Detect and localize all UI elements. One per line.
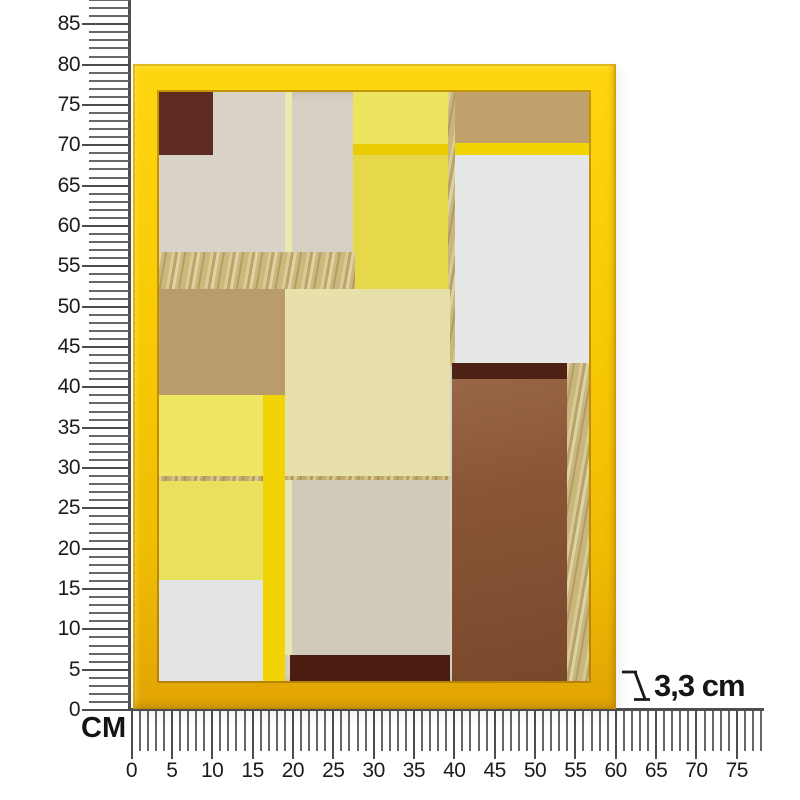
horizontal-tick [187, 711, 189, 751]
horizontal-tick [163, 711, 165, 751]
vertical-tick [82, 548, 129, 550]
horizontal-tick [566, 711, 568, 751]
block-gold-strip-right [567, 363, 589, 681]
vertical-ruler-label: 20 [58, 538, 80, 560]
horizontal-tick [639, 711, 641, 751]
horizontal-ruler-label: 70 [685, 760, 707, 782]
vertical-tick [82, 427, 129, 429]
block-yellow-stripe-vertical [263, 395, 285, 681]
vertical-tick [89, 523, 129, 525]
horizontal-ruler-label: 75 [726, 760, 748, 782]
horizontal-tick [131, 711, 133, 759]
vertical-tick [89, 31, 129, 33]
depth-annotation: 3,3 cm [621, 668, 745, 704]
horizontal-tick [591, 711, 593, 751]
vertical-tick [89, 281, 129, 283]
block-maroon-strip-bottom [290, 655, 450, 681]
vertical-ruler-label: 70 [58, 134, 80, 156]
vertical-tick [89, 217, 129, 219]
vertical-tick [89, 7, 129, 9]
vertical-tick [82, 23, 129, 25]
horizontal-tick [316, 711, 318, 751]
vertical-ruler-label: 0 [69, 699, 80, 721]
horizontal-tick [453, 711, 455, 759]
horizontal-tick [631, 711, 633, 751]
horizontal-tick [712, 711, 714, 751]
horizontal-tick [340, 711, 342, 751]
vertical-tick [89, 459, 129, 461]
horizontal-tick [623, 711, 625, 751]
vertical-tick [89, 298, 129, 300]
horizontal-tick [720, 711, 722, 751]
horizontal-tick [704, 711, 706, 751]
vertical-tick [89, 96, 129, 98]
vertical-tick [89, 177, 129, 179]
vertical-tick [89, 290, 129, 292]
block-tan-square-left [159, 289, 285, 395]
horizontal-tick [308, 711, 310, 751]
vertical-ruler-label: 15 [58, 578, 80, 600]
vertical-tick [82, 306, 129, 308]
horizontal-tick [695, 711, 697, 759]
ruler-unit-label: CM [81, 712, 126, 745]
vertical-tick [89, 362, 129, 364]
vertical-ruler-label: 80 [58, 54, 80, 76]
vertical-tick [89, 693, 129, 695]
horizontal-tick [421, 711, 423, 751]
vertical-tick [82, 628, 129, 630]
horizontal-tick [429, 711, 431, 751]
vertical-tick [89, 136, 129, 138]
horizontal-tick [405, 711, 407, 751]
vertical-ruler-label: 65 [58, 175, 80, 197]
vertical-tick [89, 128, 129, 130]
horizontal-tick [260, 711, 262, 751]
vertical-tick [89, 411, 129, 413]
block-yellow-stripe-right [455, 143, 589, 155]
vertical-tick [89, 636, 129, 638]
horizontal-tick [437, 711, 439, 751]
vertical-tick [89, 241, 129, 243]
horizontal-tick [365, 711, 367, 751]
vertical-tick [89, 47, 129, 49]
horizontal-tick [469, 711, 471, 751]
vertical-tick [89, 556, 129, 558]
vertical-tick [89, 88, 129, 90]
horizontal-tick [687, 711, 689, 751]
vertical-tick [89, 701, 129, 703]
vertical-ruler-label: 45 [58, 336, 80, 358]
vertical-tick [89, 152, 129, 154]
vertical-tick [89, 39, 129, 41]
horizontal-tick [502, 711, 504, 751]
vertical-tick [82, 265, 129, 267]
block-brown-block-right [452, 363, 567, 681]
horizontal-ruler-label: 35 [403, 760, 425, 782]
horizontal-tick [348, 711, 350, 751]
block-yellow-left-lower [159, 481, 263, 580]
horizontal-tick [413, 711, 415, 759]
horizontal-tick [268, 711, 270, 751]
vertical-tick [89, 160, 129, 162]
horizontal-tick [494, 711, 496, 759]
horizontal-tick [211, 711, 213, 759]
horizontal-ruler-label: 45 [484, 760, 506, 782]
horizontal-tick [332, 711, 334, 759]
vertical-tick [82, 185, 129, 187]
horizontal-tick [244, 711, 246, 751]
horizontal-tick [324, 711, 326, 751]
horizontal-ruler-label: 50 [524, 760, 546, 782]
vertical-tick [89, 330, 129, 332]
block-white-bottom-left [159, 580, 263, 681]
horizontal-tick [518, 711, 520, 751]
horizontal-tick [195, 711, 197, 751]
horizontal-tick [139, 711, 141, 751]
horizontal-tick [155, 711, 157, 751]
vertical-tick [89, 314, 129, 316]
horizontal-tick [760, 711, 762, 751]
horizontal-ruler-label: 40 [443, 760, 465, 782]
vertical-ruler-label: 50 [58, 296, 80, 318]
vertical-tick [89, 419, 129, 421]
vertical-tick [89, 580, 129, 582]
horizontal-tick [744, 711, 746, 751]
vertical-tick [89, 201, 129, 203]
vertical-tick [89, 273, 129, 275]
vertical-tick [89, 515, 129, 517]
block-brown-square-top-left [159, 92, 213, 155]
vertical-tick [89, 435, 129, 437]
vertical-ruler-label: 55 [58, 255, 80, 277]
vertical-tick [82, 64, 129, 66]
horizontal-tick [227, 711, 229, 751]
horizontal-tick [736, 711, 738, 759]
vertical-tick [89, 604, 129, 606]
horizontal-ruler-label: 60 [605, 760, 627, 782]
horizontal-tick [647, 711, 649, 751]
vertical-tick [89, 661, 129, 663]
vertical-tick [82, 104, 129, 106]
vertical-tick [89, 249, 129, 251]
horizontal-ruler-label: 5 [166, 760, 177, 782]
block-white-right [455, 155, 589, 366]
vertical-tick [89, 209, 129, 211]
picture-frame [133, 64, 616, 709]
vertical-tick [89, 499, 129, 501]
horizontal-tick [276, 711, 278, 751]
vertical-tick [89, 685, 129, 687]
block-pale-stripe-bottom [285, 480, 292, 655]
block-gold-band [159, 252, 355, 289]
vertical-ruler-label: 25 [58, 497, 80, 519]
vertical-tick [89, 491, 129, 493]
vertical-tick [89, 257, 129, 259]
horizontal-tick [510, 711, 512, 751]
vertical-tick [89, 645, 129, 647]
horizontal-tick [171, 711, 173, 759]
vertical-tick [89, 15, 129, 17]
horizontal-tick [752, 711, 754, 751]
horizontal-tick [381, 711, 383, 751]
horizontal-tick [582, 711, 584, 751]
horizontal-tick [397, 711, 399, 751]
vertical-tick [82, 386, 129, 388]
depth-dimension-icon [621, 668, 651, 704]
vertical-tick [89, 402, 129, 404]
block-yellow-stripe-mid [353, 144, 450, 155]
vertical-tick [89, 564, 129, 566]
vertical-tick [82, 709, 129, 711]
depth-label: 3,3 cm [654, 668, 745, 704]
vertical-tick [82, 588, 129, 590]
vertical-tick [89, 596, 129, 598]
vertical-tick [82, 225, 129, 227]
vertical-ruler-label: 10 [58, 618, 80, 640]
vertical-ruler-label: 5 [69, 659, 80, 681]
horizontal-tick [235, 711, 237, 751]
vertical-tick [89, 532, 129, 534]
vertical-tick [89, 394, 129, 396]
vertical-tick [89, 112, 129, 114]
vertical-tick [82, 346, 129, 348]
horizontal-tick [671, 711, 673, 751]
vertical-tick [89, 483, 129, 485]
horizontal-tick [574, 711, 576, 759]
vertical-tick [82, 507, 129, 509]
horizontal-tick [219, 711, 221, 751]
vertical-tick [89, 451, 129, 453]
product-dimension-scene: 0510152025303540455055606570758085 CM 05… [0, 0, 800, 800]
horizontal-tick [728, 711, 730, 751]
vertical-tick [89, 620, 129, 622]
vertical-ruler-label: 35 [58, 417, 80, 439]
vertical-tick [89, 475, 129, 477]
horizontal-ruler-label: 15 [241, 760, 263, 782]
vertical-ruler-label: 40 [58, 376, 80, 398]
horizontal-tick [445, 711, 447, 751]
horizontal-tick [486, 711, 488, 751]
horizontal-ruler-label: 55 [564, 760, 586, 782]
horizontal-tick [373, 711, 375, 759]
vertical-tick [89, 540, 129, 542]
block-greige-center [292, 480, 450, 655]
horizontal-tick [599, 711, 601, 751]
horizontal-ruler-label: 20 [282, 760, 304, 782]
block-cream-center [285, 289, 450, 480]
vertical-tick [89, 354, 129, 356]
vertical-tick [82, 467, 129, 469]
vertical-ruler-label: 30 [58, 457, 80, 479]
horizontal-tick [478, 711, 480, 751]
horizontal-tick [300, 711, 302, 751]
horizontal-tick [252, 711, 254, 759]
horizontal-ruler-label: 30 [362, 760, 384, 782]
horizontal-ruler-label: 0 [126, 760, 137, 782]
horizontal-ruler-label: 65 [645, 760, 667, 782]
horizontal-tick [292, 711, 294, 759]
vertical-tick [89, 322, 129, 324]
vertical-tick [89, 443, 129, 445]
block-maroon-strip-right [452, 363, 567, 379]
block-yellow-top-mid [353, 92, 450, 144]
vertical-ruler-label: 75 [58, 94, 80, 116]
vertical-tick [89, 338, 129, 340]
horizontal-tick [615, 711, 617, 759]
horizontal-tick [203, 711, 205, 751]
vertical-tick [89, 653, 129, 655]
horizontal-tick [389, 711, 391, 751]
horizontal-tick [679, 711, 681, 751]
block-tan-top-right [455, 92, 589, 143]
vertical-tick [82, 144, 129, 146]
block-pale-stripe-top [285, 92, 292, 252]
vertical-tick [89, 80, 129, 82]
vertical-tick [89, 193, 129, 195]
vertical-tick [89, 120, 129, 122]
vertical-tick [89, 370, 129, 372]
horizontal-tick [655, 711, 657, 759]
horizontal-tick [607, 711, 609, 751]
vertical-tick [89, 612, 129, 614]
vertical-ruler-label: 85 [58, 13, 80, 35]
block-yellow-mid [353, 155, 450, 289]
vertical-tick [89, 0, 129, 1]
vertical-tick [89, 168, 129, 170]
vertical-ruler-label: 60 [58, 215, 80, 237]
horizontal-ruler-label: 25 [322, 760, 344, 782]
vertical-tick [89, 677, 129, 679]
horizontal-tick [558, 711, 560, 751]
horizontal-tick [526, 711, 528, 751]
horizontal-tick [179, 711, 181, 751]
horizontal-ruler-label: 10 [201, 760, 223, 782]
vertical-tick [82, 669, 129, 671]
horizontal-tick [663, 711, 665, 751]
artwork [159, 92, 589, 681]
horizontal-tick [147, 711, 149, 751]
horizontal-tick [542, 711, 544, 751]
horizontal-tick [284, 711, 286, 751]
vertical-tick [89, 56, 129, 58]
horizontal-tick [461, 711, 463, 751]
vertical-tick [89, 72, 129, 74]
horizontal-tick [550, 711, 552, 751]
horizontal-tick [357, 711, 359, 751]
vertical-tick [89, 233, 129, 235]
vertical-tick [89, 572, 129, 574]
vertical-tick [89, 378, 129, 380]
block-yellow-left-upper [159, 395, 263, 476]
horizontal-tick [534, 711, 536, 759]
